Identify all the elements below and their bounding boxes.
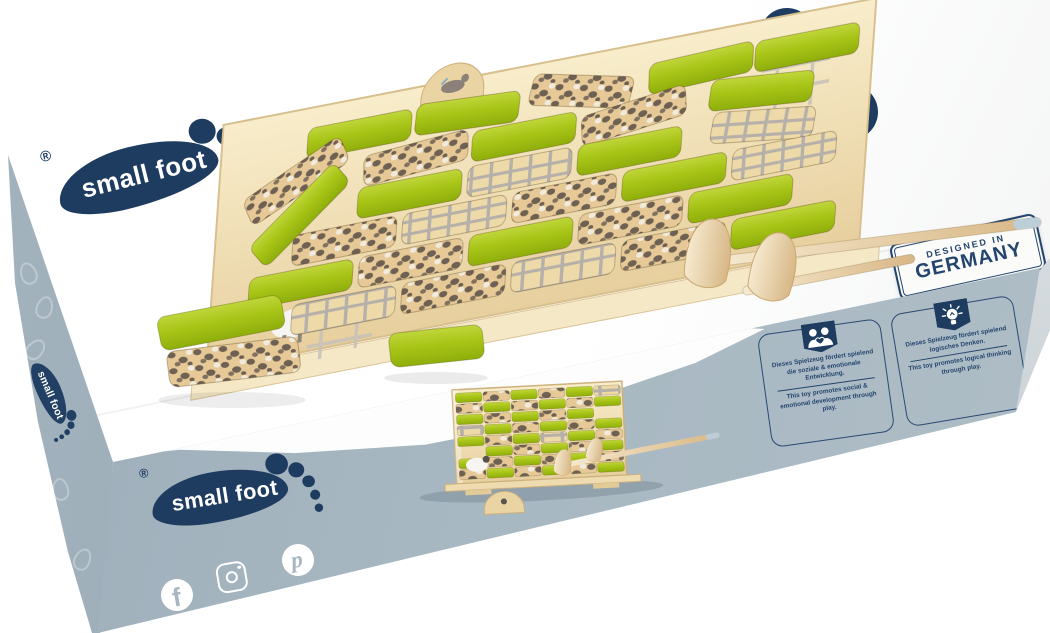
footprint-toe (310, 489, 321, 500)
footprint-watermark (33, 294, 56, 321)
brand-logo-side: small foot (24, 349, 83, 450)
info-card-logical-thinking: Dieses Spielzeug fördert spielend logisc… (889, 295, 1030, 428)
facebook-icon: f (158, 576, 195, 613)
footprint-toe (67, 421, 75, 430)
footprint-toe (252, 174, 262, 184)
footprint-toe (54, 438, 59, 443)
instagram-icon (214, 559, 251, 596)
registered-trademark: ® (138, 466, 149, 481)
footprint-watermark (70, 546, 95, 574)
pinterest-icon: p (279, 541, 316, 578)
footprint-toe (64, 429, 70, 436)
brand-logo-lid: ® small foot (35, 110, 277, 229)
footprint-toe (234, 141, 249, 155)
info-card-social-development: Dieses Spielzeug fördert spielend die so… (757, 318, 896, 448)
footprint-toe (245, 158, 257, 170)
footprint-toe (314, 503, 323, 512)
footprint-toe (216, 127, 235, 145)
registered-trademark: ® (38, 147, 53, 166)
footprint-watermark (17, 260, 41, 287)
footprint-toe (288, 462, 305, 479)
footprint-toe (302, 475, 316, 488)
footprint-watermark (50, 477, 70, 502)
footprint-toe (59, 434, 64, 439)
age-label: 4+ (769, 17, 805, 53)
